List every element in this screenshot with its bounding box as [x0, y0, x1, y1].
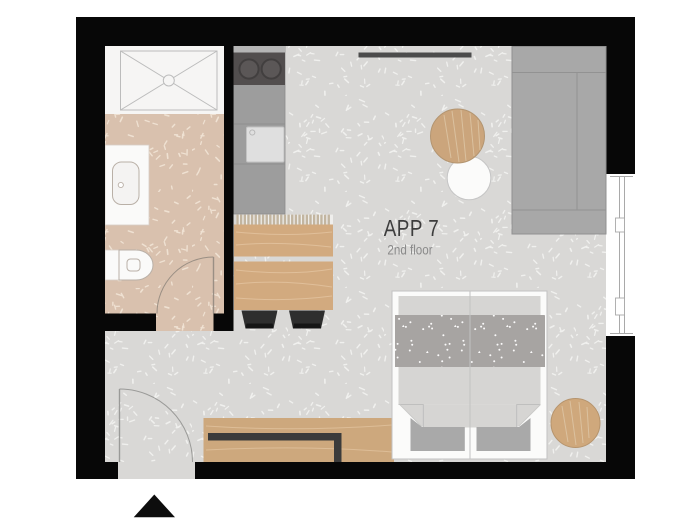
svg-text:APP 7: APP 7	[384, 216, 440, 241]
svg-text:2nd floor: 2nd floor	[387, 243, 432, 258]
